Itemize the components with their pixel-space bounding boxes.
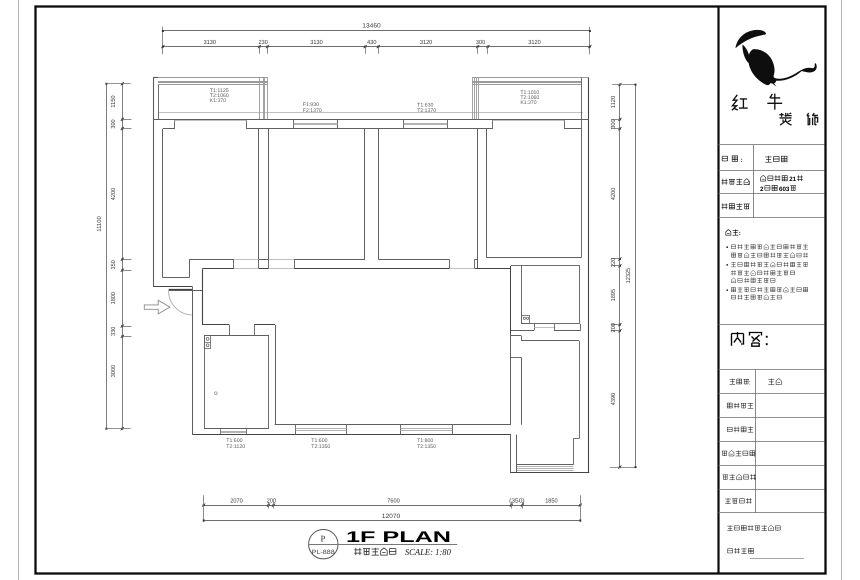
svg-text:1800: 1800 — [110, 291, 117, 304]
svg-text:7600: 7600 — [387, 498, 400, 505]
svg-text:T2:1350: T2:1350 — [417, 444, 436, 450]
svg-text:200: 200 — [610, 322, 617, 332]
svg-text::: : — [753, 550, 755, 556]
svg-text:12325: 12325 — [625, 267, 632, 283]
svg-text:1F PLAN: 1F PLAN — [346, 529, 451, 546]
svg-text:300: 300 — [110, 119, 117, 129]
svg-text:3000: 3000 — [110, 364, 117, 377]
svg-text::: : — [754, 476, 756, 482]
svg-text:K1:370: K1:370 — [210, 98, 226, 104]
svg-text:3120: 3120 — [420, 39, 433, 46]
svg-text:T2:1370: T2:1370 — [417, 108, 436, 114]
svg-text:T2:1120: T2:1120 — [226, 444, 245, 450]
svg-text:K1:370: K1:370 — [520, 100, 536, 106]
svg-text::: : — [741, 157, 743, 164]
svg-text::: : — [749, 381, 751, 387]
svg-text::: : — [739, 230, 741, 237]
svg-text:350: 350 — [110, 260, 117, 270]
svg-text:12070: 12070 — [382, 513, 401, 520]
svg-text:SCALE: 1:80: SCALE: 1:80 — [405, 547, 451, 557]
svg-text:4200: 4200 — [610, 187, 617, 200]
svg-text:2: 2 — [760, 186, 764, 193]
svg-text:603: 603 — [779, 186, 790, 193]
svg-text:300: 300 — [476, 39, 486, 46]
svg-text:2070: 2070 — [230, 498, 243, 505]
svg-text:1150: 1150 — [110, 95, 117, 108]
svg-text:1120: 1120 — [610, 95, 617, 108]
svg-text:P: P — [321, 534, 326, 544]
svg-text:3120: 3120 — [528, 39, 541, 46]
svg-text:4390: 4390 — [610, 392, 617, 405]
svg-text:1850: 1850 — [545, 498, 558, 505]
svg-text:230: 230 — [259, 39, 269, 46]
svg-text::: : — [748, 180, 750, 187]
svg-text:4200: 4200 — [110, 187, 117, 200]
svg-text::: : — [748, 204, 750, 211]
svg-text:(350): (350) — [509, 498, 525, 505]
svg-text:21: 21 — [789, 176, 796, 183]
svg-text:PL-888: PL-888 — [312, 549, 336, 556]
svg-text:430: 430 — [367, 39, 377, 46]
svg-text:220: 220 — [610, 257, 617, 267]
svg-text:330: 330 — [110, 326, 117, 336]
svg-text:3130: 3130 — [204, 39, 217, 46]
svg-text:11100: 11100 — [96, 216, 103, 232]
svg-text:13460: 13460 — [362, 23, 381, 30]
svg-text:200: 200 — [267, 498, 277, 505]
svg-text:3130: 3130 — [310, 39, 323, 46]
svg-text:1895: 1895 — [610, 288, 617, 301]
svg-text:300: 300 — [610, 119, 617, 129]
svg-text:F2:1370: F2:1370 — [303, 108, 322, 114]
svg-text:T2:1350: T2:1350 — [311, 444, 330, 450]
